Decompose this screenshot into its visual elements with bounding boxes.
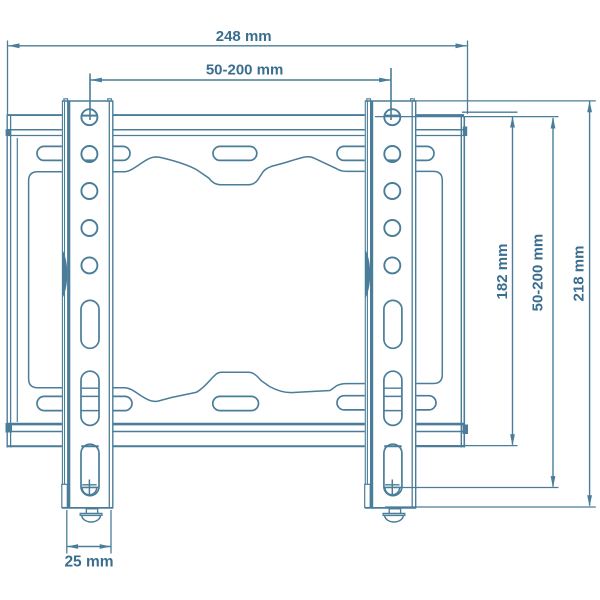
svg-text:248 mm: 248 mm xyxy=(216,28,272,45)
svg-text:50-200 mm: 50-200 mm xyxy=(529,234,546,312)
svg-text:182 mm: 182 mm xyxy=(494,244,511,300)
svg-text:218 mm: 218 mm xyxy=(570,246,587,302)
svg-text:50-200 mm: 50-200 mm xyxy=(206,61,284,78)
svg-text:25 mm: 25 mm xyxy=(64,554,113,571)
